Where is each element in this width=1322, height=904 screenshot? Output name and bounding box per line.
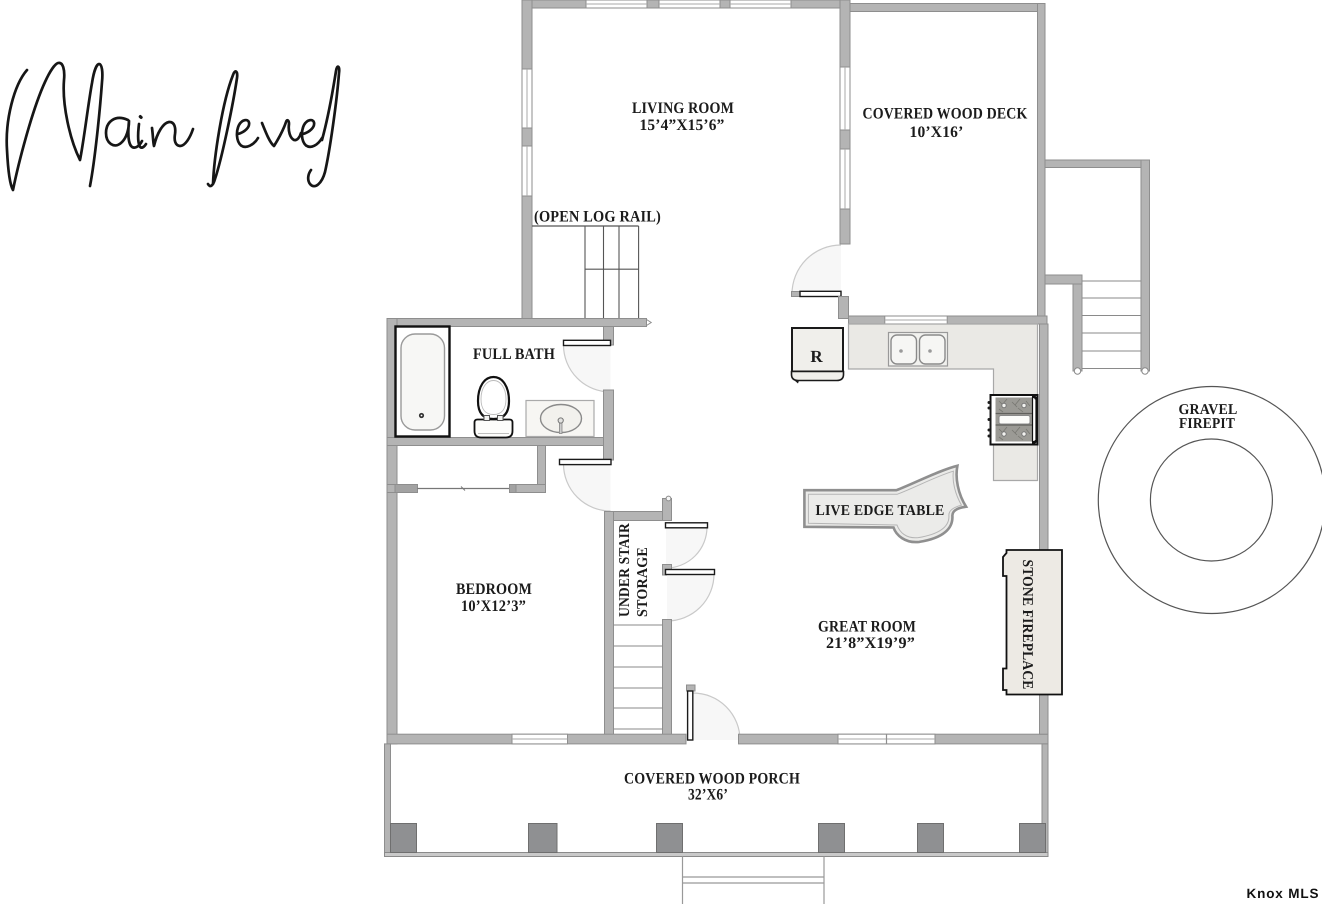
svg-text:STORAGE: STORAGE <box>635 547 651 617</box>
svg-text:GREAT ROOM: GREAT ROOM <box>818 619 916 636</box>
svg-text:BEDROOM: BEDROOM <box>456 581 532 598</box>
svg-text:21’8”X19’9”: 21’8”X19’9” <box>826 635 915 652</box>
svg-text:LIVE EDGE TABLE: LIVE EDGE TABLE <box>816 503 945 519</box>
svg-text:LIVING ROOM: LIVING ROOM <box>632 100 734 117</box>
svg-text:FULL BATH: FULL BATH <box>473 346 555 363</box>
svg-text:UNDER STAIR: UNDER STAIR <box>617 523 633 617</box>
svg-text:COVERED WOOD DECK: COVERED WOOD DECK <box>863 106 1028 123</box>
svg-text:FIREPIT: FIREPIT <box>1179 416 1235 432</box>
svg-text:32’X6’: 32’X6’ <box>688 787 728 804</box>
svg-text:15’4”X15’6”: 15’4”X15’6” <box>640 117 725 134</box>
svg-text:Knox MLS: Knox MLS <box>1247 886 1319 901</box>
svg-text:10’X12’3”: 10’X12’3” <box>461 598 526 615</box>
svg-text:R: R <box>810 347 823 366</box>
svg-text:10’X16’: 10’X16’ <box>910 124 964 141</box>
svg-text:(OPEN LOG RAIL): (OPEN LOG RAIL) <box>534 209 661 226</box>
svg-text:COVERED WOOD PORCH: COVERED WOOD PORCH <box>624 771 800 788</box>
svg-text:STONE FIREPLACE: STONE FIREPLACE <box>1019 560 1035 690</box>
